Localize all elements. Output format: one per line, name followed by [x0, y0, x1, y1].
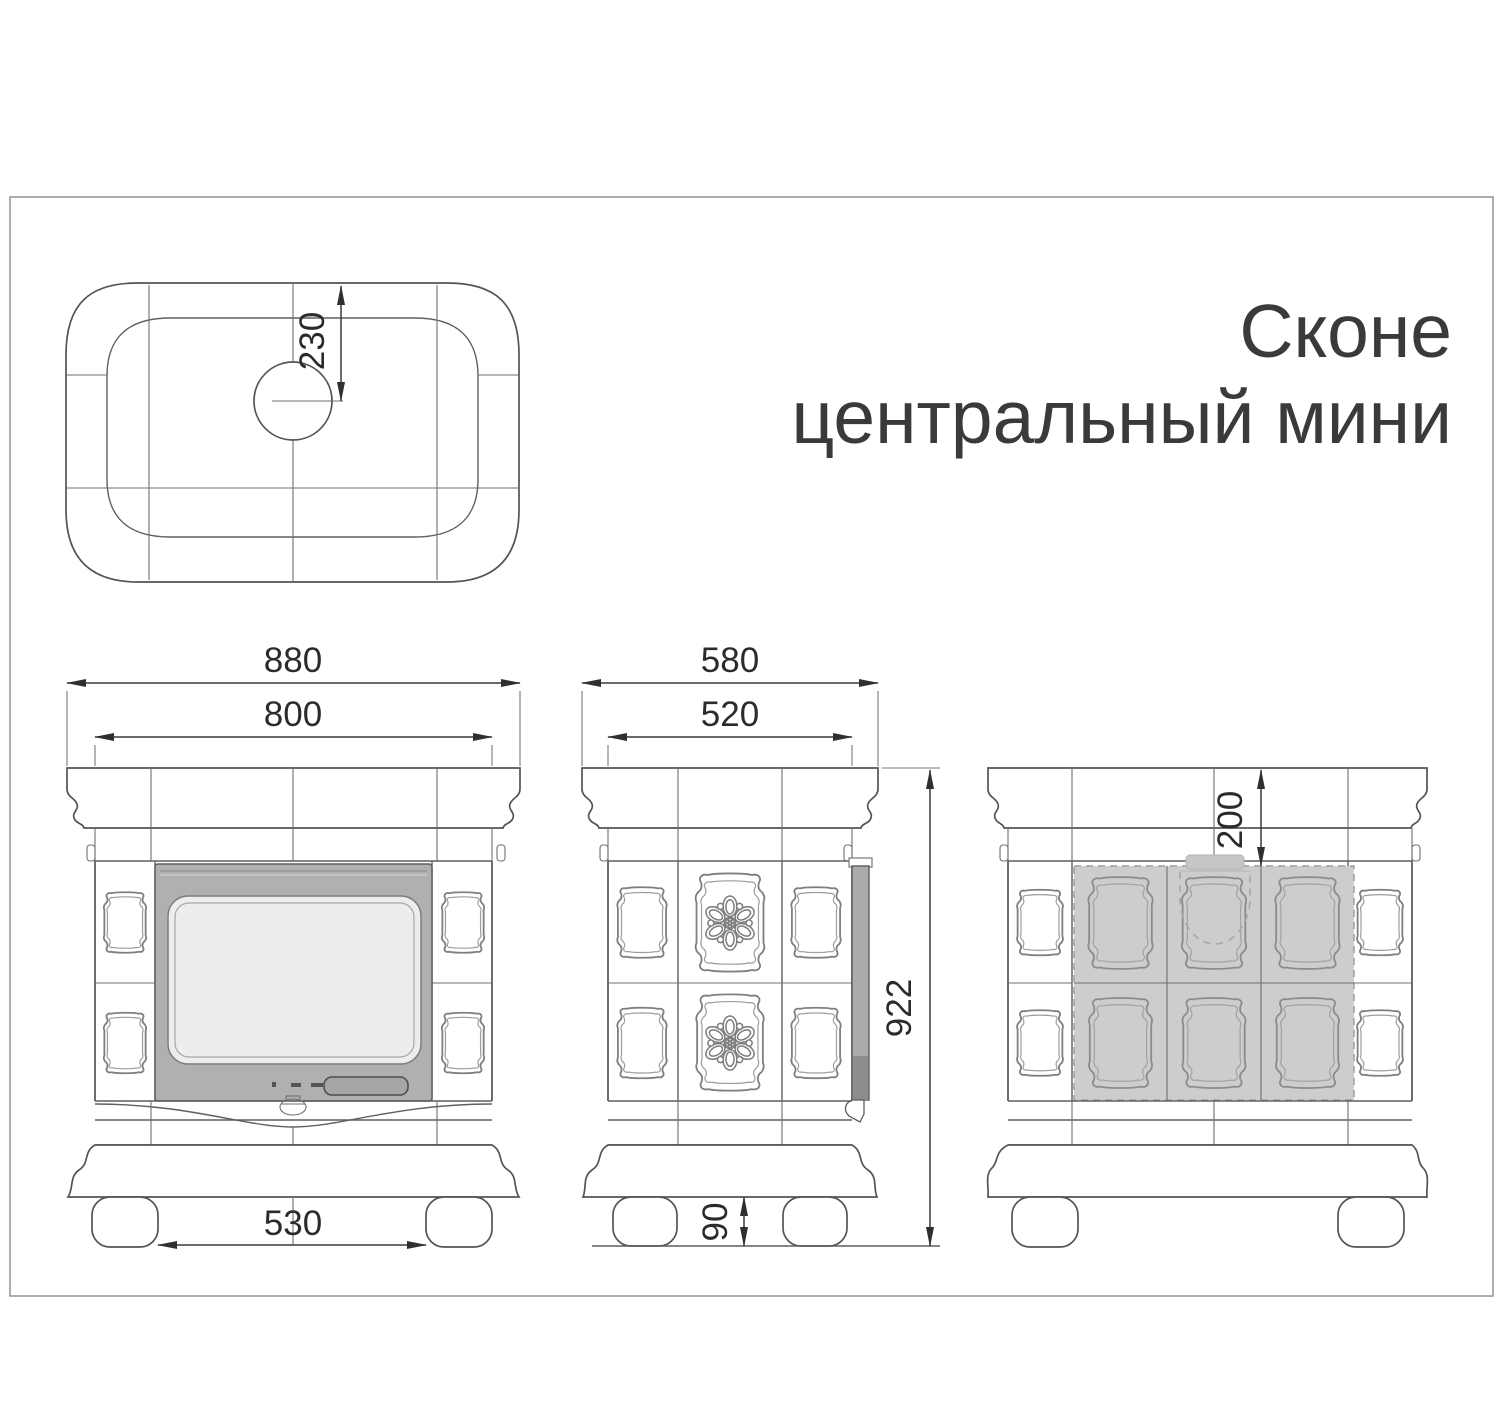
side-cornice [582, 768, 878, 828]
dim-side-overall-depth-label: 580 [701, 641, 759, 680]
rear-right-foot [1338, 1197, 1404, 1247]
flue-connector-tab [1186, 855, 1244, 869]
drawing-sheet: Сконе центральный мини 230 880 [0, 0, 1500, 1427]
door-glass [168, 896, 421, 1064]
dim-front-feet-span-label: 530 [264, 1204, 322, 1243]
dim-rear-flue-offset-label: 200 [1211, 791, 1250, 849]
side-front-foot [613, 1197, 677, 1246]
dim-front-body-width-label: 800 [264, 695, 322, 734]
dim-side-overall-height-label: 922 [880, 979, 919, 1037]
front-right-foot [426, 1197, 492, 1247]
front-plinth [68, 1145, 519, 1197]
dim-front-overall-width-label: 880 [264, 641, 322, 680]
rear-shaded-region [1074, 855, 1354, 1100]
rear-left-foot [1012, 1197, 1078, 1247]
page-title-line1: Сконе [1239, 289, 1452, 373]
front-left-foot [92, 1197, 158, 1247]
dim-side-body-depth-label: 520 [701, 695, 759, 734]
rear-plinth [988, 1145, 1428, 1197]
page-title-line2: центральный мини [791, 375, 1452, 459]
dim-side-feet-height-label: 90 [696, 1203, 735, 1242]
technical-drawing: Сконе центральный мини 230 880 [0, 0, 1500, 1427]
door-handle [324, 1077, 408, 1095]
dim-top-flue-offset-label: 230 [293, 312, 332, 370]
side-plinth [583, 1145, 877, 1197]
side-rear-foot [783, 1197, 847, 1246]
rear-cornice [988, 768, 1427, 828]
firebox-door [155, 864, 432, 1101]
